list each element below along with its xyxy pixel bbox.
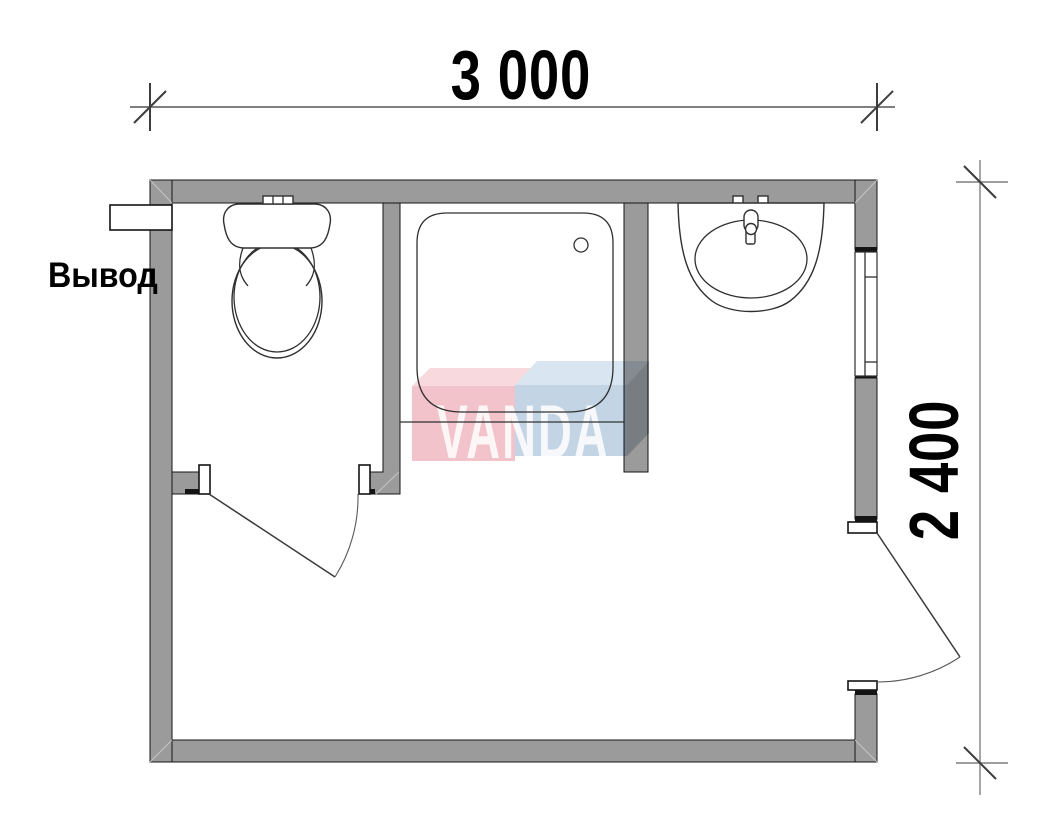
- watermark-text: VANDA: [436, 391, 609, 475]
- flush-buttons: [263, 196, 293, 204]
- exterior-door: [848, 522, 960, 690]
- dimension-width-label: 3 000: [451, 40, 576, 110]
- interior-door: [199, 465, 370, 577]
- floor-plan-canvas: VANDA 3 000 2 400 Вывод: [0, 0, 1054, 818]
- outlet-pipe: [110, 205, 172, 230]
- shower-drain: [574, 238, 588, 252]
- toilet: [224, 196, 331, 358]
- washbasin: [678, 196, 824, 312]
- outlet-label: Вывод: [48, 258, 158, 293]
- dimension-height-label: 2 400: [899, 400, 969, 541]
- window: [855, 252, 877, 376]
